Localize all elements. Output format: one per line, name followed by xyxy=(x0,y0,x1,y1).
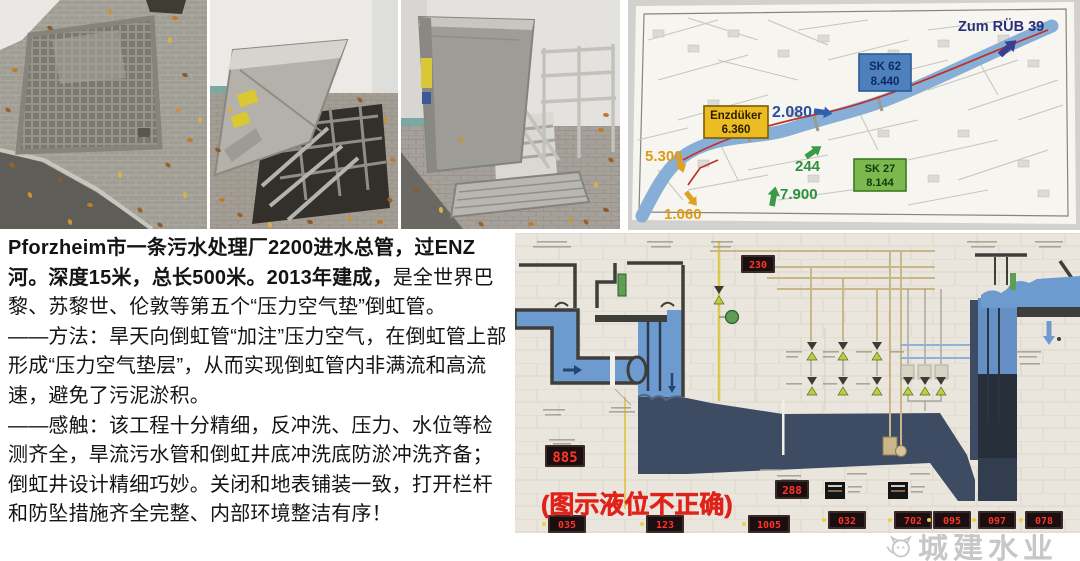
tank-wall xyxy=(970,300,978,460)
map-art: Zum RÜB 39 2.080 244 7.900 5.300 1.060 E… xyxy=(628,0,1080,230)
label-1060: 1.060 xyxy=(664,206,702,223)
wall-corner-shade xyxy=(372,0,398,96)
tank-sediment xyxy=(978,374,1017,460)
box-sk62-value: 8.440 xyxy=(871,76,900,88)
bottom-display-6-value: 095 xyxy=(943,516,961,527)
label-5300: 5.300 xyxy=(645,148,683,165)
box-enzduker: Enzdüker 6.360 xyxy=(704,106,768,138)
photo-hatch-open xyxy=(401,0,620,229)
label-2080: 2.080 xyxy=(772,104,812,121)
tank-water xyxy=(978,298,1017,376)
article-paragraph: ——方法：旱天向倒虹管“加注”压力空气，在倒虹管上部形成“压力空气垫层”，从而实… xyxy=(8,323,512,412)
article-text: Pforzheim市一条污水处理厂2200进水总管，过ENZ河。深度15米，总长… xyxy=(8,234,512,530)
bottom-display-3: 1005 xyxy=(742,515,790,533)
box-enzduker-title: Enzdüker xyxy=(710,110,762,122)
box-enzduker-value: 6.360 xyxy=(722,124,751,136)
sensor-label-boxes xyxy=(901,365,948,379)
mid-right-display-value: 288 xyxy=(782,484,802,497)
bottom-display-4-value: 032 xyxy=(838,516,856,527)
article-paragraph: ——感触：该工程十分精细，反冲洗、压力、水位等检测齐全，旱流污水管和倒虹井底冲洗… xyxy=(8,412,512,530)
schematic-art: 2308852880351231005032702095097078 (图示液位… xyxy=(515,233,1080,533)
bottom-display-2-value: 123 xyxy=(656,520,674,531)
page: Zum RÜB 39 2.080 244 7.900 5.300 1.060 E… xyxy=(0,0,1080,561)
bottom-display-4: 032 xyxy=(822,511,866,529)
photo-hatch-closed xyxy=(0,0,207,229)
outlet-weir xyxy=(1017,307,1080,317)
level-gauge-gap xyxy=(610,352,615,386)
watermark-logo-icon xyxy=(884,534,914,561)
bottom-display-3-value: 1005 xyxy=(757,520,781,531)
schematic-panel: 2308852880351231005032702095097078 (图示液位… xyxy=(515,233,1080,533)
bottom-display-7: 097 xyxy=(972,511,1016,529)
bottom-display-6: 095 xyxy=(927,511,971,529)
green-valve-circle xyxy=(726,311,739,324)
map-panel: Zum RÜB 39 2.080 244 7.900 5.300 1.060 E… xyxy=(628,0,1080,230)
bottom-display-8-value: 078 xyxy=(1035,516,1053,527)
label-244: 244 xyxy=(795,158,821,175)
barrel-gauge xyxy=(782,400,785,455)
flush-float xyxy=(896,446,907,457)
article-paragraph: Pforzheim市一条污水处理厂2200进水总管，过ENZ河。深度15米，总长… xyxy=(8,234,512,323)
photo-hatch-open-art xyxy=(401,0,620,229)
article-segment: ——感触：该工程十分精细，反冲洗、压力、水位等检测齐全，旱流污水管和倒虹井底冲洗… xyxy=(8,415,493,526)
mid-left-display: 885 xyxy=(545,445,585,467)
bottom-display-8: 078 xyxy=(1019,511,1063,529)
hatch-cover xyxy=(18,18,160,152)
outlet-gate xyxy=(1010,273,1016,290)
watermark: 城建水业 xyxy=(884,534,1080,561)
label-zum-rub: Zum RÜB 39 xyxy=(958,18,1044,35)
photo-hatch-opening xyxy=(210,0,398,229)
bottom-display-7-value: 097 xyxy=(988,516,1006,527)
mid-left-display-value: 885 xyxy=(552,450,577,466)
shoes xyxy=(146,0,186,14)
photo-hatch-closed-art xyxy=(0,0,207,229)
sluice-gate xyxy=(618,274,626,296)
label-7900: 7.900 xyxy=(780,186,818,203)
bottom-display-1-value: 035 xyxy=(558,520,576,531)
box-sk62-title: SK 62 xyxy=(869,61,901,73)
box-sk27-title: SK 27 xyxy=(865,163,896,175)
box-sk27: SK 27 8.144 xyxy=(854,159,906,191)
article-segment: ——方法：旱天向倒虹管“加注”压力空气，在倒虹管上部形成“压力空气垫层”，从而实… xyxy=(8,326,507,407)
bottom-display-5-value: 702 xyxy=(904,516,922,527)
blue-sticker xyxy=(422,92,431,104)
pipe-cross-section xyxy=(628,357,646,383)
mid-right-display: 288 xyxy=(775,480,809,499)
photo-hatch-opening-art xyxy=(210,0,398,229)
bottom-display-5: 702 xyxy=(888,511,932,529)
red-overlay-note: (图示液位不正确) xyxy=(541,490,733,519)
top-display-value: 230 xyxy=(749,260,767,271)
top-display: 230 xyxy=(741,255,775,273)
flush-weight xyxy=(883,437,897,455)
hatch-lid-vertical xyxy=(419,17,534,172)
box-sk62: SK 62 8.440 xyxy=(859,54,911,91)
tank-bottom xyxy=(978,458,1017,501)
weir-platform xyxy=(595,315,667,322)
box-sk27-value: 8.144 xyxy=(866,177,894,189)
watermark-text: 城建水业 xyxy=(918,534,1058,561)
warning-sticker xyxy=(421,58,432,88)
pipe-teal xyxy=(401,118,427,126)
